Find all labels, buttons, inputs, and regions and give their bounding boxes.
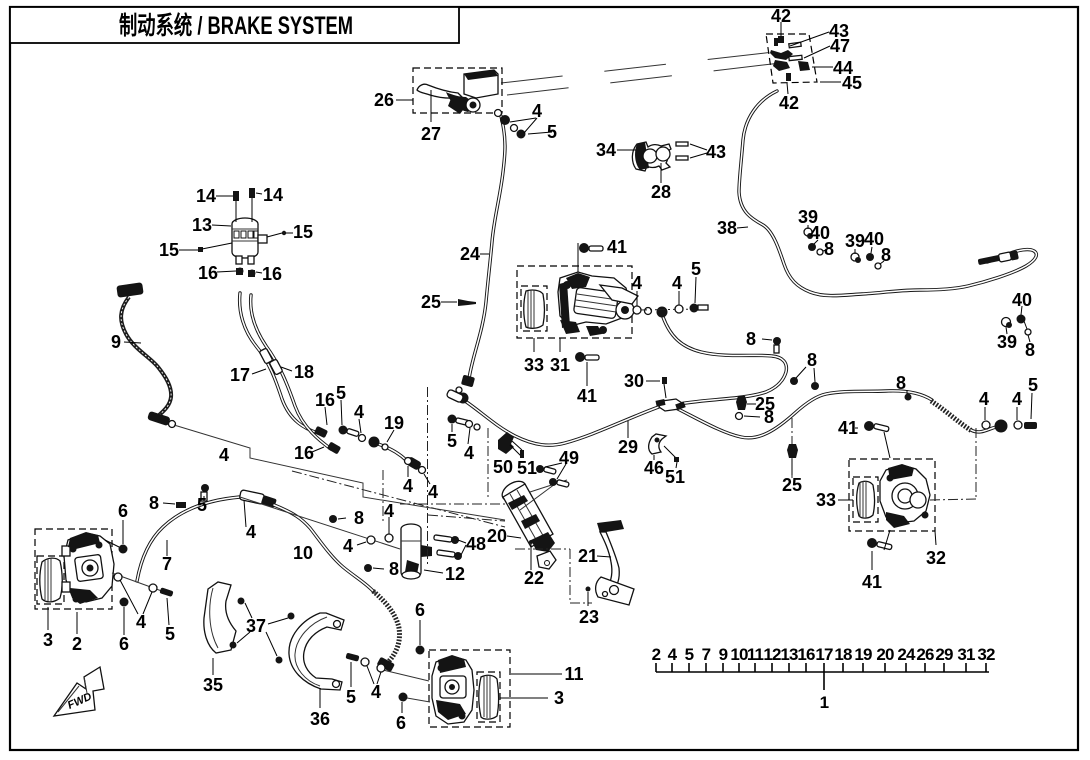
svg-text:6: 6 [118,501,128,521]
svg-text:11: 11 [747,645,764,664]
svg-text:17: 17 [815,645,833,664]
svg-text:16: 16 [315,390,335,410]
svg-text:4: 4 [343,536,353,556]
svg-text:30: 30 [624,371,644,391]
svg-text:4: 4 [384,501,394,521]
svg-text:5: 5 [346,687,356,707]
svg-text:6: 6 [119,634,129,654]
svg-text:21: 21 [578,546,598,566]
svg-text:16: 16 [797,645,815,664]
svg-text:8: 8 [389,559,399,579]
svg-text:29: 29 [618,437,638,457]
svg-text:5: 5 [1028,375,1038,395]
svg-text:24: 24 [897,645,916,664]
svg-text:23: 23 [579,607,599,627]
svg-text:5: 5 [165,624,175,644]
svg-text:31: 31 [957,645,975,664]
svg-text:22: 22 [524,568,544,588]
svg-text:41: 41 [607,237,627,257]
svg-text:5: 5 [447,431,457,451]
svg-text:18: 18 [294,362,314,382]
svg-text:13: 13 [780,645,798,664]
svg-text:24: 24 [460,244,480,264]
svg-text:19: 19 [384,413,404,433]
svg-text:28: 28 [651,182,671,202]
svg-text:4: 4 [136,612,146,632]
svg-text:16: 16 [198,263,218,283]
svg-text:5: 5 [691,259,701,279]
svg-text:4: 4 [632,273,642,293]
svg-text:51: 51 [665,467,685,487]
svg-text:4: 4 [246,522,256,542]
svg-text:32: 32 [926,548,946,568]
svg-text:8: 8 [764,407,774,427]
svg-text:33: 33 [816,490,836,510]
svg-text:4: 4 [672,273,682,293]
svg-text:5: 5 [547,122,557,142]
svg-text:5: 5 [336,383,346,403]
svg-text:8: 8 [881,245,891,265]
svg-text:41: 41 [838,418,858,438]
svg-text:3: 3 [43,630,53,650]
svg-text:6: 6 [396,713,406,733]
svg-text:35: 35 [203,675,223,695]
svg-text:4: 4 [428,482,438,502]
svg-text:47: 47 [830,36,850,56]
svg-text:20: 20 [876,645,894,664]
svg-text:41: 41 [577,386,597,406]
svg-text:39: 39 [845,231,865,251]
svg-text:20: 20 [487,526,507,546]
svg-text:6: 6 [415,600,425,620]
svg-text:12: 12 [445,564,465,584]
svg-text:2: 2 [652,645,661,664]
svg-text:34: 34 [596,140,616,160]
svg-text:38: 38 [717,218,737,238]
svg-text:32: 32 [977,645,995,664]
svg-text:8: 8 [1025,340,1035,360]
svg-text:41: 41 [862,572,882,592]
svg-text:8: 8 [149,493,159,513]
svg-text:51: 51 [517,458,537,478]
svg-text:4: 4 [1012,389,1022,409]
svg-text:36: 36 [310,709,330,729]
svg-text:8: 8 [807,350,817,370]
svg-text:42: 42 [771,6,791,26]
svg-text:4: 4 [219,445,229,465]
svg-text:8: 8 [896,373,906,393]
svg-text:13: 13 [192,215,212,235]
svg-text:43: 43 [706,142,726,162]
svg-text:5: 5 [685,645,694,664]
svg-text:7: 7 [162,554,172,574]
svg-text:15: 15 [293,222,313,242]
svg-text:16: 16 [262,264,282,284]
svg-text:19: 19 [854,645,872,664]
svg-text:26: 26 [374,90,394,110]
svg-text:37: 37 [246,616,266,636]
svg-text:10: 10 [730,645,748,664]
svg-text:4: 4 [979,389,989,409]
svg-text:25: 25 [782,475,802,495]
svg-text:4: 4 [354,402,364,422]
svg-text:42: 42 [779,93,799,113]
svg-text:4: 4 [668,645,678,664]
svg-text:49: 49 [559,448,579,468]
svg-text:4: 4 [532,101,542,121]
svg-text:16: 16 [294,443,314,463]
svg-text:40: 40 [1012,290,1032,310]
svg-text:7: 7 [702,645,711,664]
svg-text:33: 33 [524,355,544,375]
svg-text:10: 10 [293,543,313,563]
svg-text:8: 8 [824,239,834,259]
svg-text:50: 50 [493,457,513,477]
svg-text:25: 25 [421,292,441,312]
svg-text:14: 14 [196,186,216,206]
svg-text:制动系统 / BRAKE SYSTEM: 制动系统 / BRAKE SYSTEM [119,11,353,40]
svg-text:4: 4 [371,682,381,702]
svg-text:26: 26 [916,645,934,664]
svg-text:39: 39 [997,332,1017,352]
svg-text:4: 4 [403,476,413,496]
svg-text:9: 9 [111,332,121,352]
svg-text:45: 45 [842,73,862,93]
svg-text:46: 46 [644,458,664,478]
svg-text:17: 17 [230,365,250,385]
svg-text:18: 18 [834,645,852,664]
svg-text:11: 11 [564,664,583,684]
svg-text:14: 14 [263,185,283,205]
svg-text:9: 9 [719,645,728,664]
svg-text:8: 8 [746,329,756,349]
svg-text:48: 48 [466,534,486,554]
svg-text:27: 27 [421,124,441,144]
svg-text:1: 1 [820,693,829,712]
svg-text:31: 31 [550,355,570,375]
svg-text:15: 15 [159,240,179,260]
svg-text:8: 8 [354,508,364,528]
svg-text:3: 3 [554,688,564,708]
svg-text:5: 5 [197,495,207,515]
svg-text:2: 2 [72,634,82,654]
svg-text:4: 4 [464,443,474,463]
svg-text:12: 12 [763,645,781,664]
svg-text:29: 29 [935,645,953,664]
